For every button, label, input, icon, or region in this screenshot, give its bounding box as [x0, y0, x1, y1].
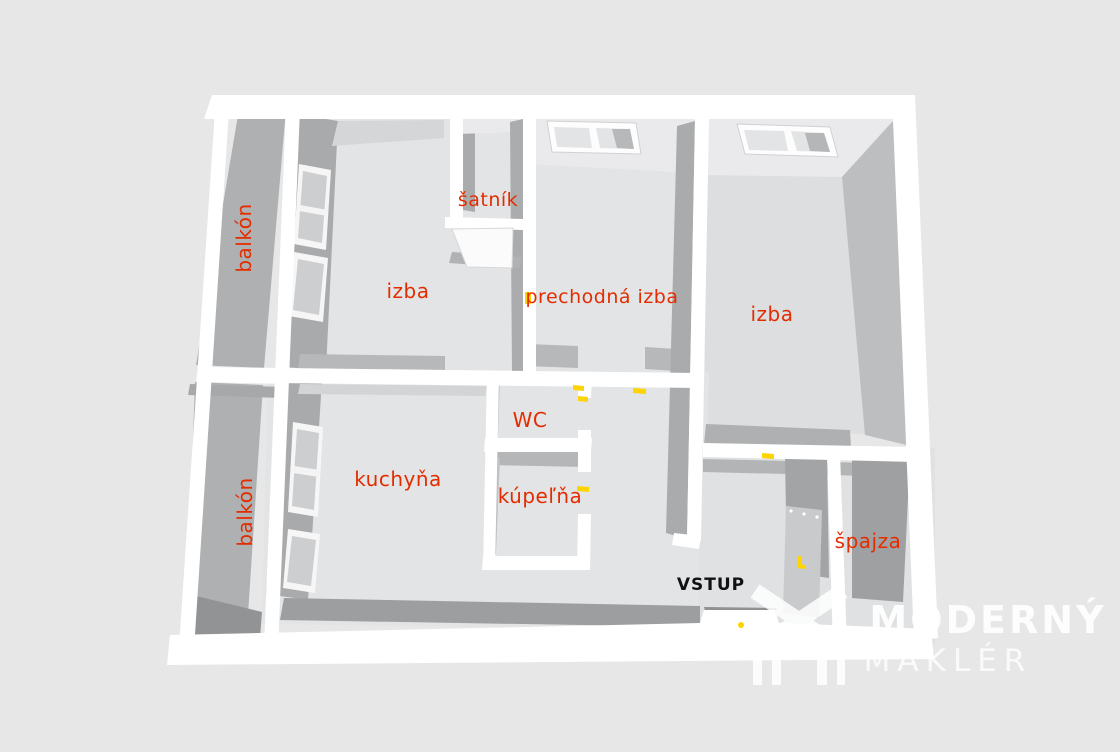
- spajza-door-hinge-3: [815, 515, 818, 518]
- izba-right-window-pane-left: [744, 130, 788, 151]
- watermark-brand-subtitle: MAKLÉR: [864, 643, 1033, 679]
- room-label-balkon-top: balkón: [232, 203, 256, 272]
- room-label-balkon-bottom: balkón: [233, 477, 257, 546]
- kupelna-south-wall: [482, 556, 590, 570]
- room-label-wc: WC: [513, 408, 548, 432]
- wc-kupelna-divider-wall: [484, 438, 592, 452]
- wc-east-wall-a: [578, 373, 592, 398]
- kitchen-window-2-pane: [287, 536, 316, 586]
- door-marker-entry: [738, 622, 744, 628]
- kupelna-north-face: [487, 452, 588, 467]
- room-label-prechodna: prechodná izba: [526, 286, 679, 308]
- spajza-door-hinge-2: [802, 512, 805, 515]
- izba-left-south-face: [298, 354, 445, 371]
- floorplan-svg: balkón balkón izba šatník prechodná izba…: [0, 0, 1120, 752]
- door-marker-prechodna-left: [573, 385, 584, 391]
- room-label-kupelna: kúpeľňa: [498, 484, 583, 508]
- door-marker-prechodna-right: [633, 388, 646, 394]
- floorplan-image: balkón balkón izba šatník prechodná izba…: [0, 0, 1120, 752]
- kupelna-east-wall-a: [578, 452, 591, 472]
- room-label-satnik: šatník: [458, 189, 518, 211]
- watermark-brand-name: MODERNÝ: [869, 598, 1106, 642]
- room-label-izba-right: izba: [750, 302, 793, 326]
- room-label-spajza: špajza: [835, 529, 902, 553]
- room-label-izba-left: izba: [386, 279, 429, 303]
- room-label-kuchyna: kuchyňa: [354, 467, 442, 491]
- top-outer-wall: [204, 95, 915, 119]
- kitchen-north-shadow: [298, 384, 487, 396]
- spajza-door-hinge-1: [789, 509, 792, 512]
- izba-left-window-2-pane: [293, 259, 324, 315]
- door-marker-izba-right: [762, 453, 774, 459]
- door-marker-wc: [578, 396, 588, 402]
- entrance-label: VSTUP: [677, 575, 745, 595]
- prechodna-window-pane-left: [554, 127, 592, 148]
- wall-izba-prechodna: [523, 119, 536, 371]
